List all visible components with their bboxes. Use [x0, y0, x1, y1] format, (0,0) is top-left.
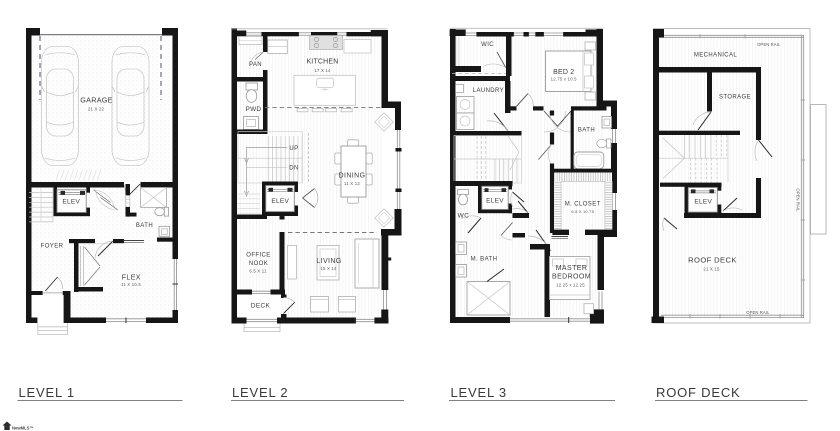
svg-text:11 X 12: 11 X 12: [344, 181, 360, 186]
svg-text:MECHANICAL: MECHANICAL: [694, 52, 738, 58]
svg-text:M. BATH: M. BATH: [471, 257, 498, 263]
svg-text:BED 2: BED 2: [553, 69, 574, 76]
svg-text:FLEX: FLEX: [122, 275, 141, 282]
svg-text:ROOF DECK: ROOF DECK: [688, 256, 737, 265]
svg-text:UP: UP: [289, 146, 298, 152]
svg-text:15 X 14: 15 X 14: [320, 266, 337, 271]
svg-text:6.5 X 10.75: 6.5 X 10.75: [571, 209, 594, 214]
svg-text:ROOF DECK: ROOF DECK: [656, 385, 740, 400]
svg-text:LEVEL 3: LEVEL 3: [451, 385, 507, 400]
svg-text:GARAGE: GARAGE: [80, 96, 113, 105]
svg-text:LEVEL 2: LEVEL 2: [232, 385, 288, 400]
svg-text:ELEV: ELEV: [271, 198, 289, 205]
svg-text:11 X 10.5: 11 X 10.5: [121, 282, 141, 287]
svg-text:OPEN RAIL: OPEN RAIL: [757, 42, 781, 47]
svg-text:FOYER: FOYER: [41, 244, 64, 250]
svg-text:ELEV: ELEV: [486, 198, 504, 205]
svg-text:LAUNDRY: LAUNDRY: [473, 88, 504, 94]
svg-text:21 X 15: 21 X 15: [703, 266, 720, 271]
svg-text:DINING: DINING: [339, 172, 366, 179]
svg-text:KITCHEN: KITCHEN: [306, 59, 338, 66]
svg-text:ELEV: ELEV: [694, 198, 712, 205]
svg-text:OPEN RAIL: OPEN RAIL: [796, 188, 801, 212]
svg-text:OPEN RAIL: OPEN RAIL: [746, 310, 770, 315]
svg-text:BATH: BATH: [578, 128, 595, 134]
svg-text:M. CLOSET: M. CLOSET: [565, 201, 601, 207]
svg-text:NOOK: NOOK: [249, 261, 268, 267]
svg-text:PAN: PAN: [249, 62, 262, 68]
svg-text:21 X 22: 21 X 22: [88, 107, 105, 112]
svg-text:6.5 X 11: 6.5 X 11: [249, 269, 267, 274]
svg-text:MASTER: MASTER: [556, 265, 588, 272]
svg-text:17 X 14: 17 X 14: [314, 68, 331, 73]
svg-text:DN: DN: [289, 166, 298, 172]
svg-text:STORAGE: STORAGE: [719, 95, 751, 101]
svg-text:OFFICE: OFFICE: [246, 253, 270, 259]
svg-text:12.25 x 12.25: 12.25 x 12.25: [556, 282, 585, 287]
svg-text:DECK: DECK: [251, 303, 271, 310]
svg-text:BEDROOM: BEDROOM: [552, 273, 591, 280]
svg-text:BATH: BATH: [136, 223, 153, 229]
svg-text:LEVEL 1: LEVEL 1: [19, 385, 75, 400]
svg-text:NewMLS™: NewMLS™: [12, 426, 34, 431]
svg-text:ELEV: ELEV: [62, 198, 80, 205]
svg-text:12.75 x 10.5: 12.75 x 10.5: [551, 77, 577, 82]
svg-text:PWD: PWD: [245, 106, 261, 113]
svg-text:WIC: WIC: [481, 42, 494, 48]
svg-text:LIVING: LIVING: [316, 258, 341, 265]
